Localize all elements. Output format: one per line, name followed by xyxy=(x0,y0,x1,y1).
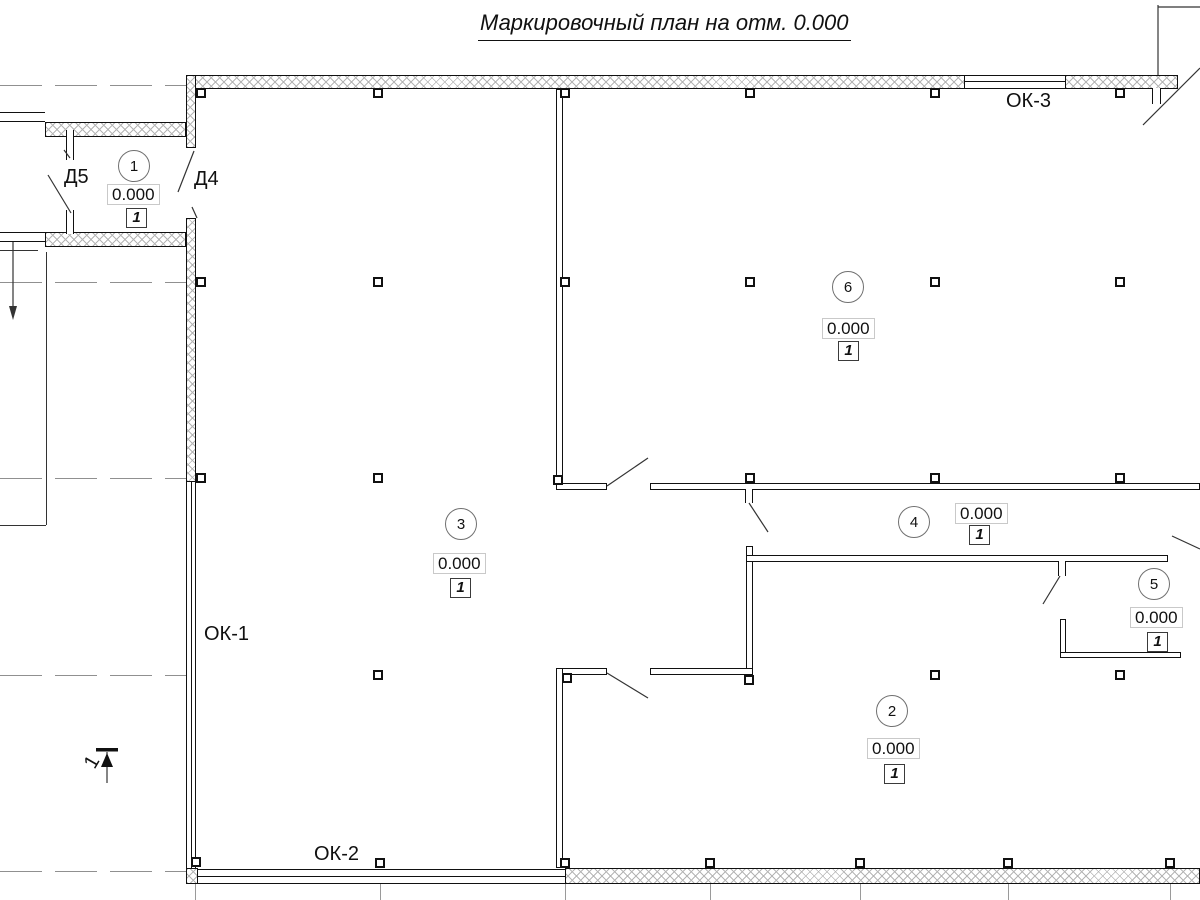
section-arrow-bar xyxy=(96,748,118,752)
door-d4-leader-line xyxy=(192,207,197,218)
lower-door-swing-line xyxy=(607,673,648,698)
room2-door-swing-line xyxy=(1043,576,1060,604)
top-right-leader-line xyxy=(1143,68,1200,125)
hall-door-swing-line xyxy=(607,458,648,486)
corridor-door-swing-line xyxy=(749,503,768,532)
floor-plan-canvas: Маркировочный план на отм. 0.000 xyxy=(0,0,1200,900)
door-d4-swing-line xyxy=(178,151,194,192)
section-mark-label: 1 xyxy=(80,752,105,773)
door-d5-leader-line xyxy=(64,150,70,158)
door-d5-swing-line xyxy=(48,175,71,213)
annotation-lines-layer: 1 xyxy=(0,0,1200,900)
stair-direction-arrowhead xyxy=(9,306,17,320)
right-edge-swing-line xyxy=(1172,536,1200,549)
